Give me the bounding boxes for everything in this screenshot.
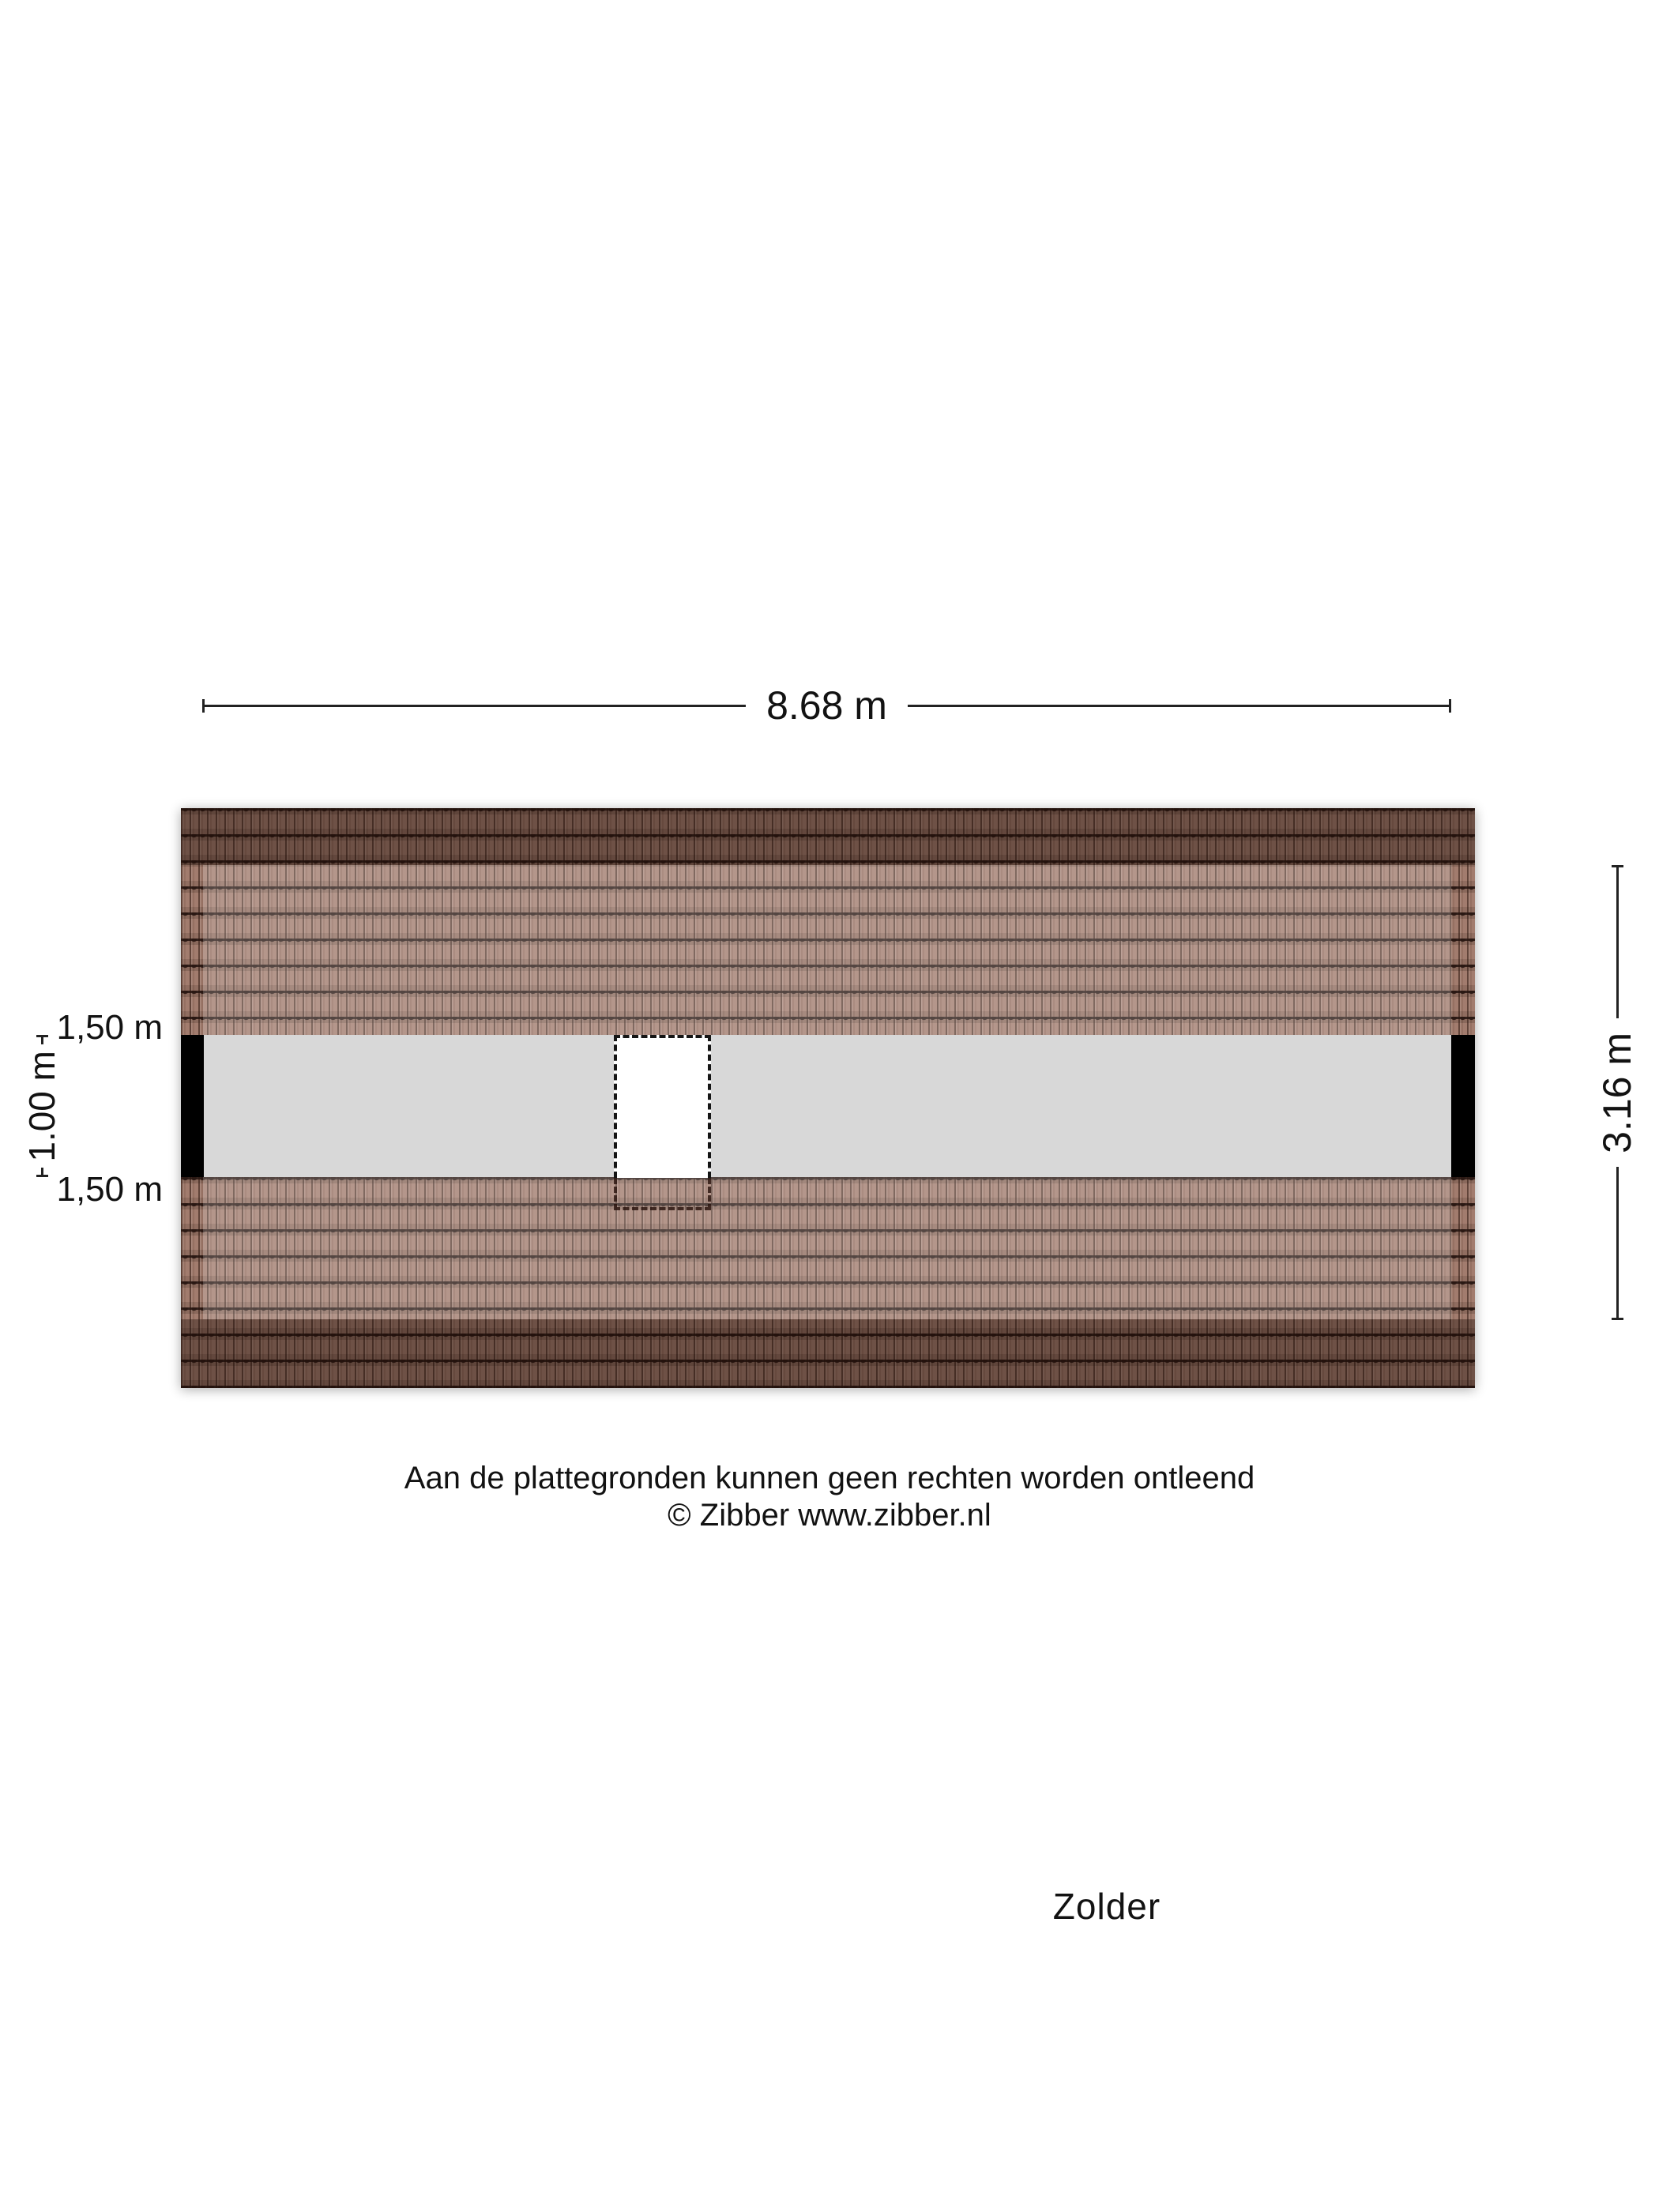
dimension-left-floor-depth: 1.00 m	[28, 1035, 56, 1177]
label-roof-depth-bottom: 1,50 m	[30, 1171, 163, 1209]
disclaimer-text: Aan de plattegronden kunnen geen rechten…	[0, 1460, 1659, 1497]
dimension-line-segment	[908, 705, 1451, 707]
dimension-tick-top	[1612, 865, 1623, 867]
dimension-right-value: 3.16 m	[1594, 1018, 1640, 1168]
dimension-tick-right	[1449, 699, 1451, 713]
dimension-top-width: 8.68 m	[202, 687, 1451, 724]
dimension-tick-bottom	[1612, 1318, 1623, 1320]
wall-left	[181, 1035, 204, 1177]
wall-right	[1451, 1035, 1475, 1177]
dimension-line-segment	[202, 705, 746, 707]
roof-top-highlight	[203, 865, 1451, 1035]
dimension-line-segment	[1616, 1167, 1619, 1320]
roof-bottom-highlight	[203, 1177, 1451, 1319]
dimension-top-value: 8.68 m	[746, 683, 908, 728]
dimension-right-height: 3.16 m	[1603, 865, 1631, 1320]
copyright-text: © Zibber www.zibber.nl	[0, 1497, 1659, 1534]
roof-surface-bottom	[181, 1177, 1475, 1388]
stair-opening	[614, 1035, 711, 1178]
roof-top-ridge-band	[181, 808, 1475, 865]
floorplan: Zolder	[181, 808, 1475, 1388]
footer: Aan de plattegronden kunnen geen rechten…	[0, 1460, 1659, 1534]
dimension-tick-top	[36, 1035, 48, 1037]
dimension-tick-left	[202, 699, 205, 713]
dimension-line-segment	[1616, 865, 1619, 1018]
roof-bottom-eave-band	[181, 1319, 1475, 1388]
stair-opening-extension	[614, 1178, 711, 1210]
dimension-left-value: 1.00 m	[21, 1044, 63, 1168]
roof-surface-top	[181, 808, 1475, 1035]
attic-floor-area	[181, 1035, 1475, 1177]
room-label: Zolder	[996, 1885, 1217, 1928]
